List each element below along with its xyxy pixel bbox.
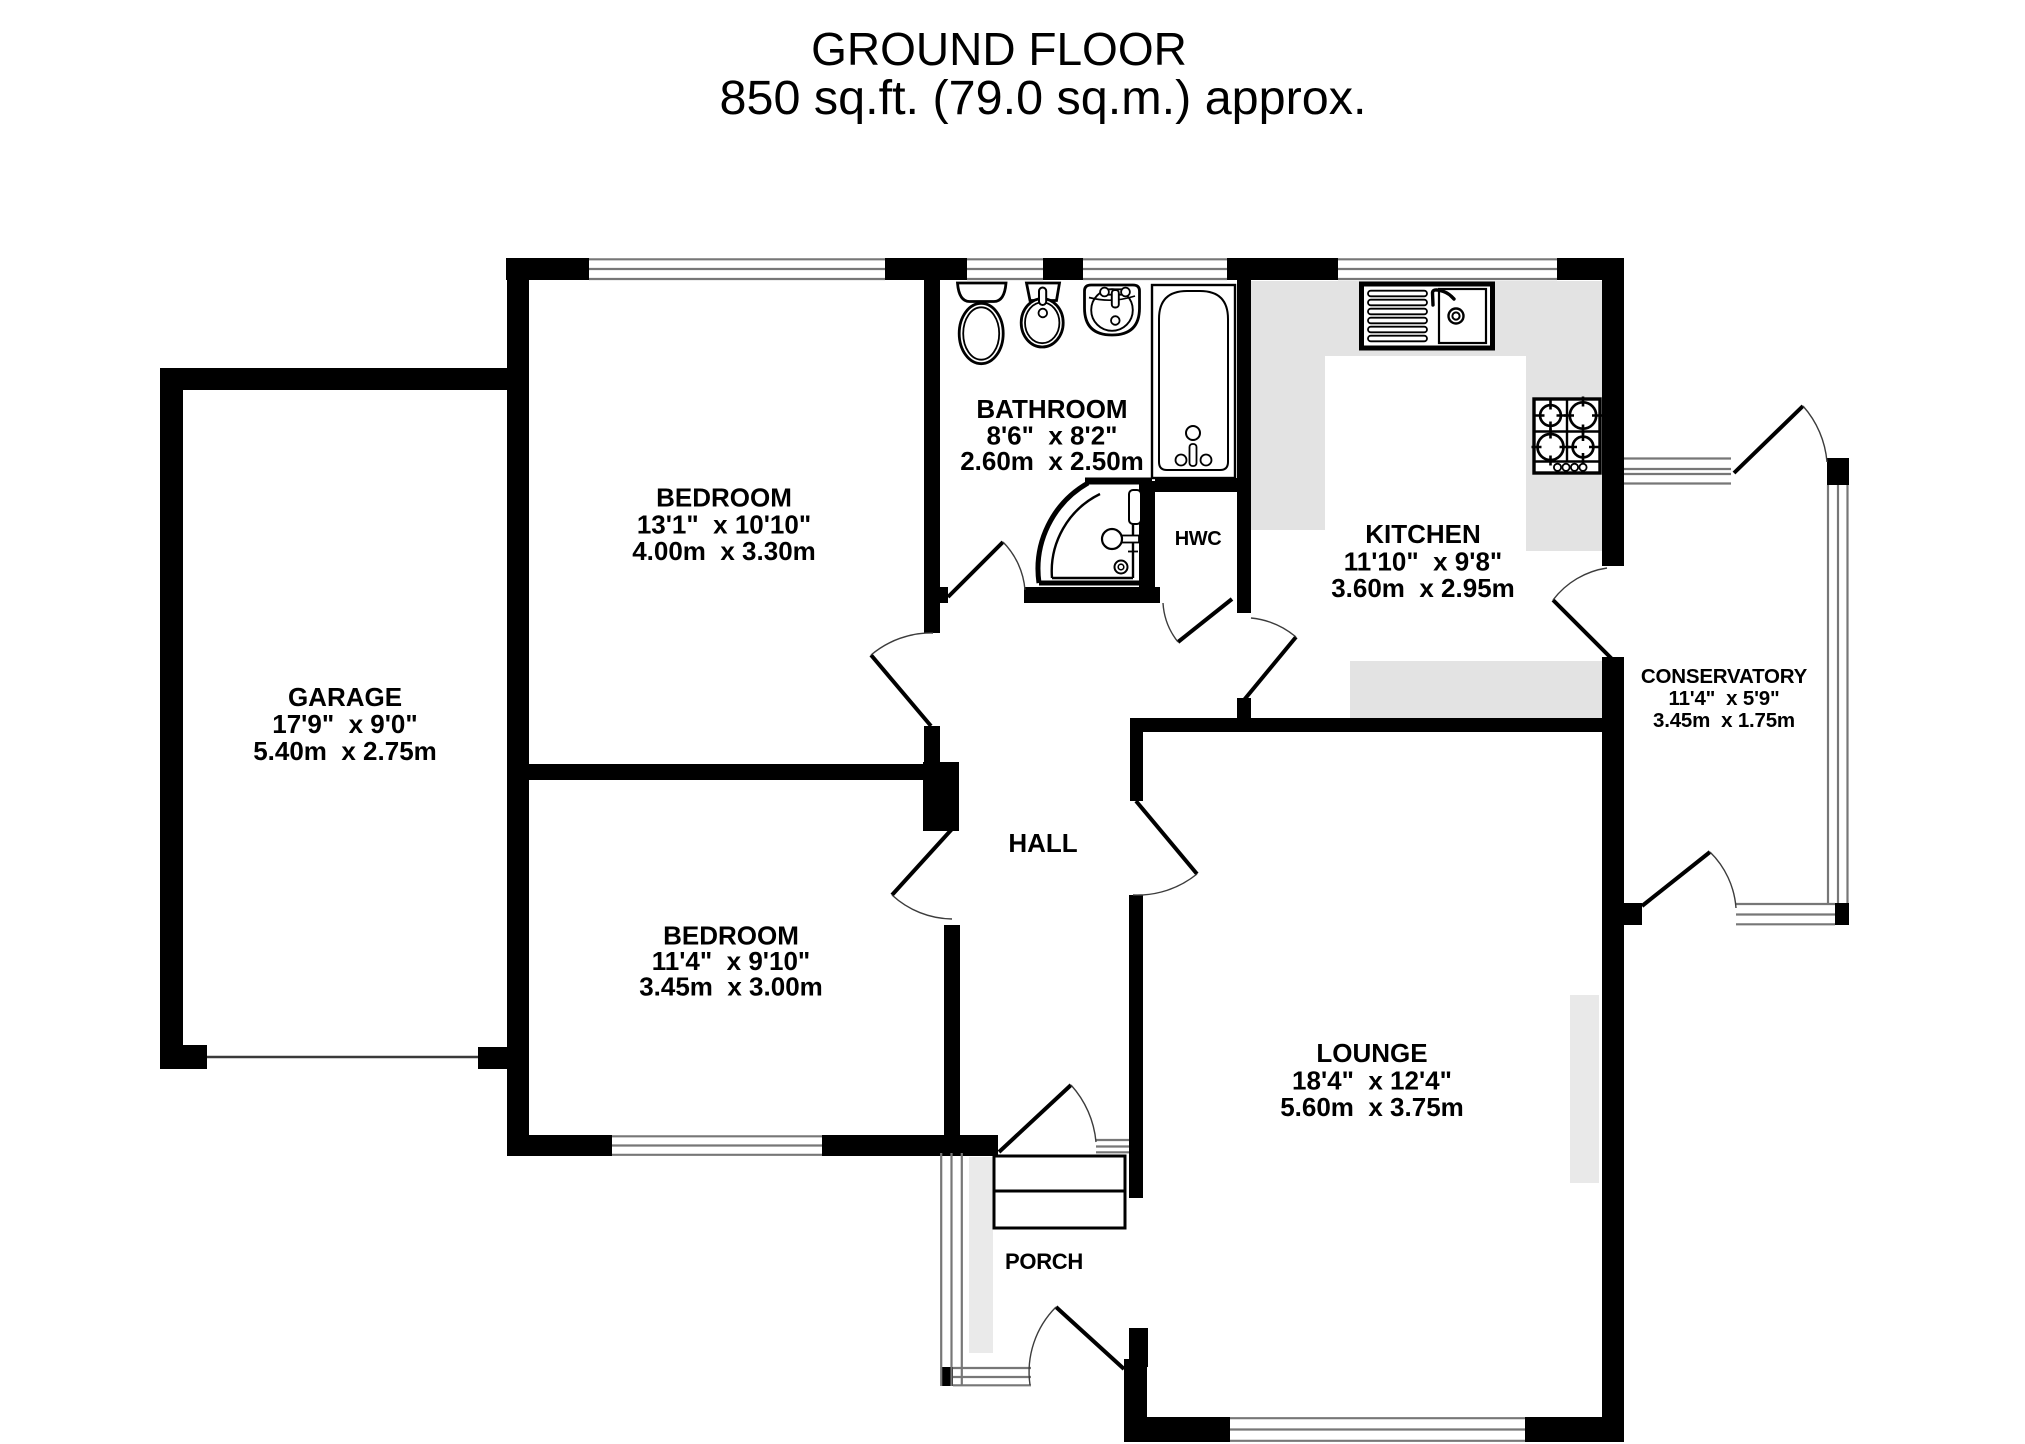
svg-text:3.45m x 1.75m: 3.45m x 1.75m: [1653, 709, 1795, 732]
svg-text:5.60m x 3.75m: 5.60m x 3.75m: [1280, 1092, 1464, 1122]
svg-text:13'1" x 10'10": 13'1" x 10'10": [637, 510, 811, 540]
svg-text:850 sq.ft. (79.0 sq.m.) approx: 850 sq.ft. (79.0 sq.m.) approx.: [720, 71, 1367, 125]
svg-text:CONSERVATORY: CONSERVATORY: [1641, 665, 1808, 688]
svg-text:GARAGE: GARAGE: [288, 682, 402, 712]
svg-text:4.00m x 3.30m: 4.00m x 3.30m: [632, 536, 816, 566]
svg-text:2.60m x 2.50m: 2.60m x 2.50m: [960, 446, 1144, 476]
svg-text:BEDROOM: BEDROOM: [656, 483, 792, 513]
svg-text:PORCH: PORCH: [1005, 1249, 1083, 1274]
svg-text:18'4" x 12'4": 18'4" x 12'4": [1292, 1066, 1452, 1096]
svg-text:3.45m x 3.00m: 3.45m x 3.00m: [639, 972, 823, 1002]
svg-text:3.60m x 2.95m: 3.60m x 2.95m: [1331, 573, 1515, 603]
svg-text:11'10" x 9'8": 11'10" x 9'8": [1344, 547, 1502, 577]
svg-text:HALL: HALL: [1008, 828, 1077, 858]
svg-text:11'4" x 5'9": 11'4" x 5'9": [1669, 687, 1780, 710]
svg-text:5.40m x 2.75m: 5.40m x 2.75m: [253, 736, 437, 766]
svg-text:17'9" x 9'0": 17'9" x 9'0": [272, 709, 417, 739]
svg-text:BATHROOM: BATHROOM: [976, 394, 1127, 424]
svg-text:LOUNGE: LOUNGE: [1316, 1038, 1427, 1068]
svg-text:KITCHEN: KITCHEN: [1365, 519, 1481, 549]
svg-text:GROUND FLOOR: GROUND FLOOR: [811, 23, 1187, 75]
svg-text:HWC: HWC: [1175, 528, 1222, 550]
